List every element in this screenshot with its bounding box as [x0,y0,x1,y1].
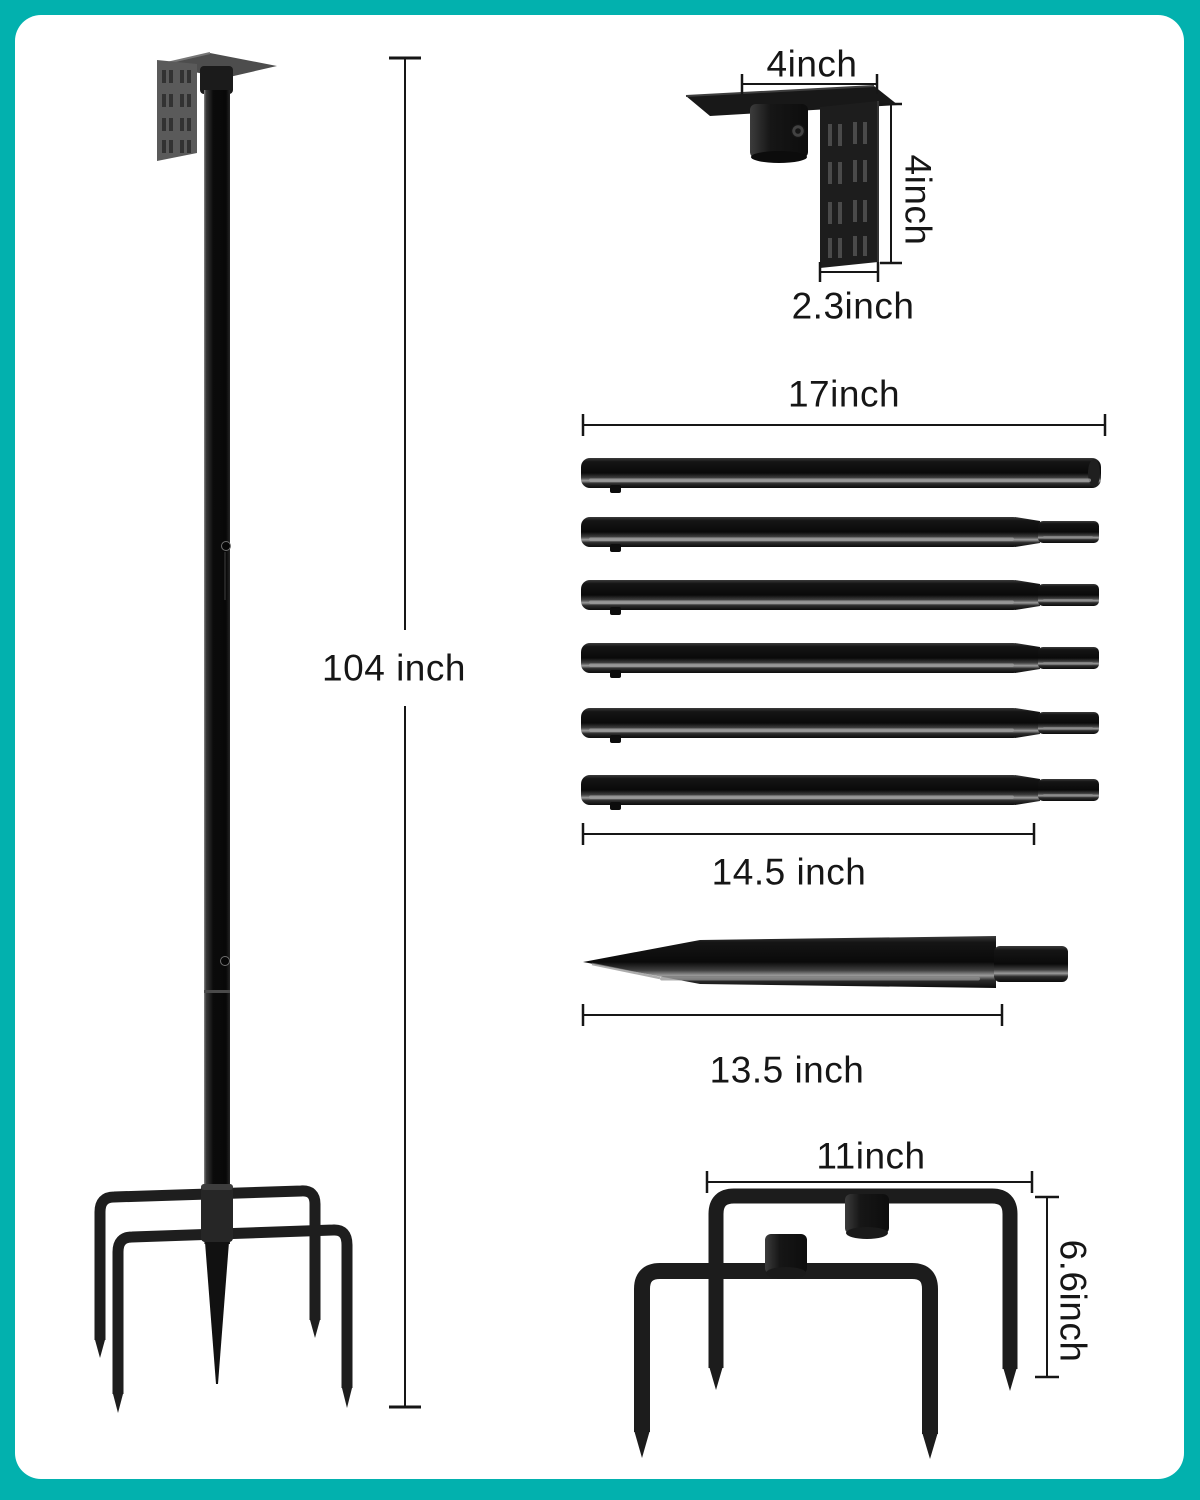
bracket-width-label: 4inch [767,46,858,83]
tube-section-2 [581,517,1099,552]
tube-full-length-dimension-line [583,414,1105,436]
base-detail [634,1194,1017,1459]
base-front-hub-bottom [766,1267,806,1279]
tube-section-4 [581,643,1099,678]
tube-section-5 [581,708,1099,743]
pole-shaft [204,90,230,1244]
bracket-detail-screw-center [795,128,801,134]
spike-length-label: 13.5 inch [710,1052,865,1089]
base-width-label: 11inch [816,1138,925,1175]
tube-section-1 [581,458,1101,493]
tube-full-length-label: 17inch [788,376,900,413]
tube-body-length-dimension-line [583,823,1034,845]
tube-body-length-label: 14.5 inch [712,854,867,891]
spike-collar [994,946,1068,982]
tube-section-3 [581,580,1099,615]
prong-hub-top [201,1184,233,1190]
bracket-detail [686,86,898,268]
spike-length-dimension-line [583,1004,1002,1026]
spike-highlight [660,977,980,981]
base-rear-hub-bottom [846,1227,888,1239]
base-front-u [642,1271,930,1434]
bracket-depth-label: 2.3inch [792,288,915,325]
product-diagram-page: 104 inch 4inch 4inch 2.3inch 17inch 14.5… [0,0,1200,1500]
ground-spike-detail [583,936,1068,988]
bracket-height-label: 4inch [900,155,937,246]
tube-set [581,458,1101,810]
pole-joint-seam [204,990,230,993]
prong-tips [95,1318,353,1413]
pole-button-upper [222,542,231,551]
base-front-tips [634,1430,938,1459]
pole-button-lower [221,957,230,966]
tube-section-6 [581,775,1099,810]
main-pole-assembly [95,53,353,1413]
base-height-label: 6.6inch [1055,1240,1092,1363]
pole-height-label: 104 inch [322,650,466,687]
base-rear-tips [709,1366,1017,1391]
pole-height-dimension-line [389,58,421,1407]
bracket-pole-socket [200,66,233,94]
diagram-graphics [0,0,1200,1500]
center-ground-spike [205,1242,229,1384]
prong-hub-clamp [201,1184,233,1242]
bracket-detail-socket-bottom [751,151,807,163]
